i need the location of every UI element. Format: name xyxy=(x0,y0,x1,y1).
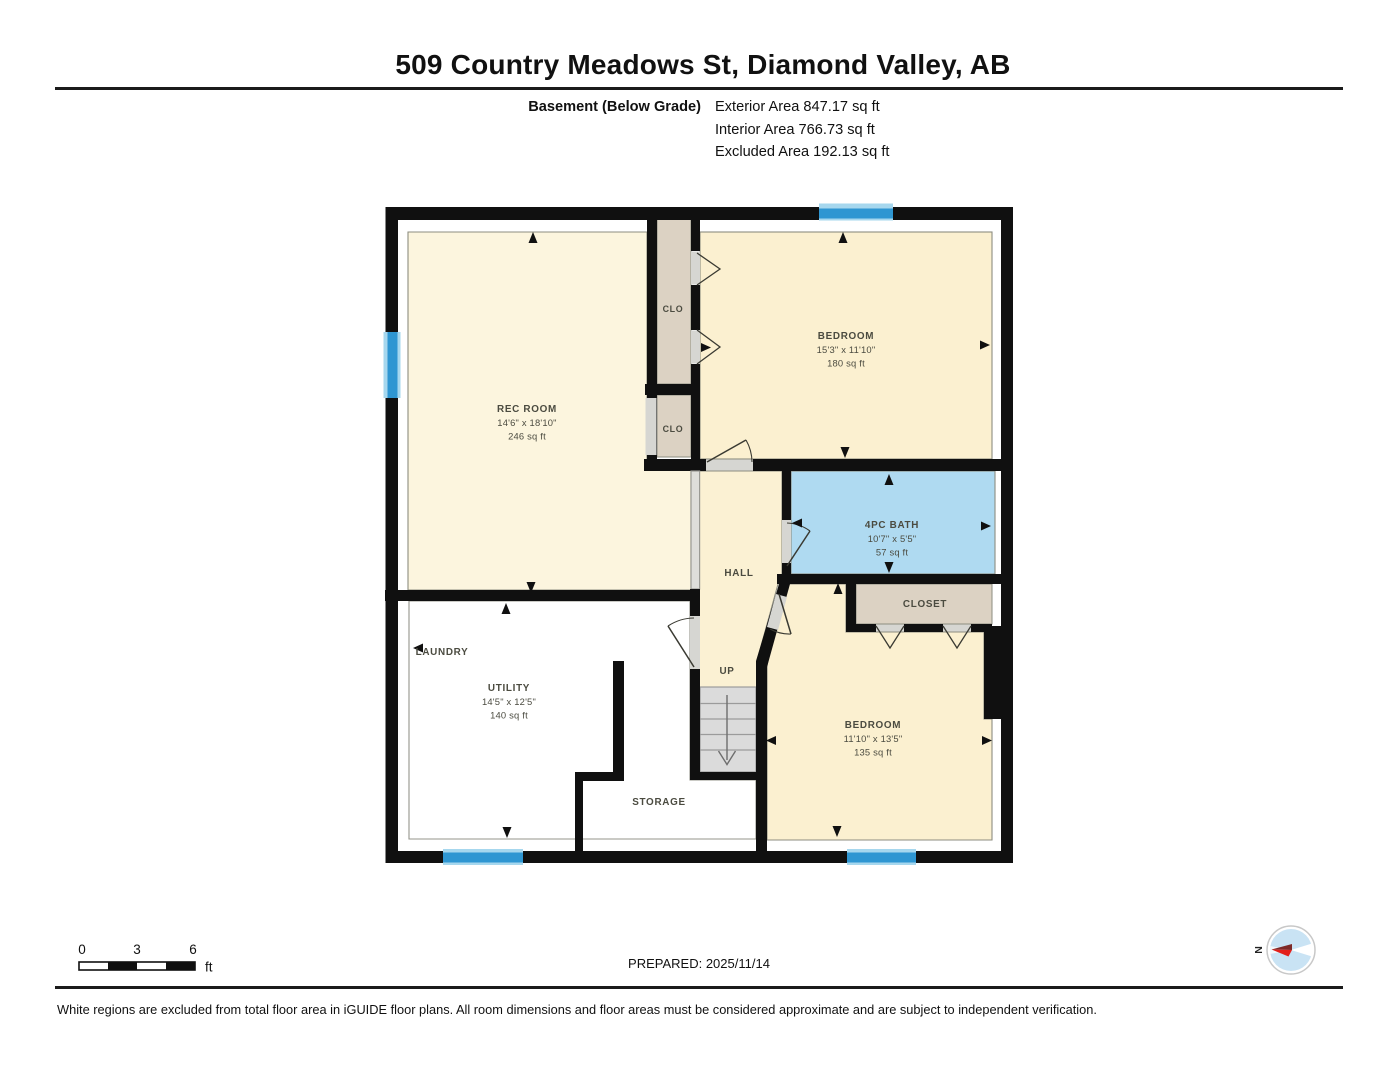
svg-text:3: 3 xyxy=(133,942,141,957)
svg-text:HALL: HALL xyxy=(724,568,753,579)
svg-text:10'7" x 5'5": 10'7" x 5'5" xyxy=(868,533,917,544)
svg-text:14'6" x 18'10": 14'6" x 18'10" xyxy=(497,417,556,428)
svg-text:BEDROOM: BEDROOM xyxy=(845,720,901,731)
svg-text:UTILITY: UTILITY xyxy=(488,683,530,694)
svg-text:140 sq ft: 140 sq ft xyxy=(490,710,528,721)
svg-text:135 sq ft: 135 sq ft xyxy=(854,747,892,758)
svg-text:LAUNDRY: LAUNDRY xyxy=(416,647,469,658)
svg-text:57 sq ft: 57 sq ft xyxy=(876,547,909,558)
svg-text:UP: UP xyxy=(719,666,734,677)
svg-text:14'5" x 12'5": 14'5" x 12'5" xyxy=(482,696,536,707)
svg-text:CLO: CLO xyxy=(663,424,684,434)
svg-text:STORAGE: STORAGE xyxy=(632,797,686,808)
svg-text:0: 0 xyxy=(78,942,86,957)
svg-text:180 sq ft: 180 sq ft xyxy=(827,358,865,369)
svg-text:N: N xyxy=(1253,946,1265,954)
svg-text:CLOSET: CLOSET xyxy=(903,599,947,610)
svg-text:11'10" x 13'5": 11'10" x 13'5" xyxy=(844,733,903,744)
svg-text:REC ROOM: REC ROOM xyxy=(497,404,557,415)
svg-text:BEDROOM: BEDROOM xyxy=(818,331,874,342)
svg-text:6: 6 xyxy=(189,942,197,957)
svg-text:4PC BATH: 4PC BATH xyxy=(865,520,919,531)
svg-text:15'3" x 11'10": 15'3" x 11'10" xyxy=(817,344,876,355)
svg-text:246 sq ft: 246 sq ft xyxy=(508,431,546,442)
svg-text:CLO: CLO xyxy=(663,304,684,314)
